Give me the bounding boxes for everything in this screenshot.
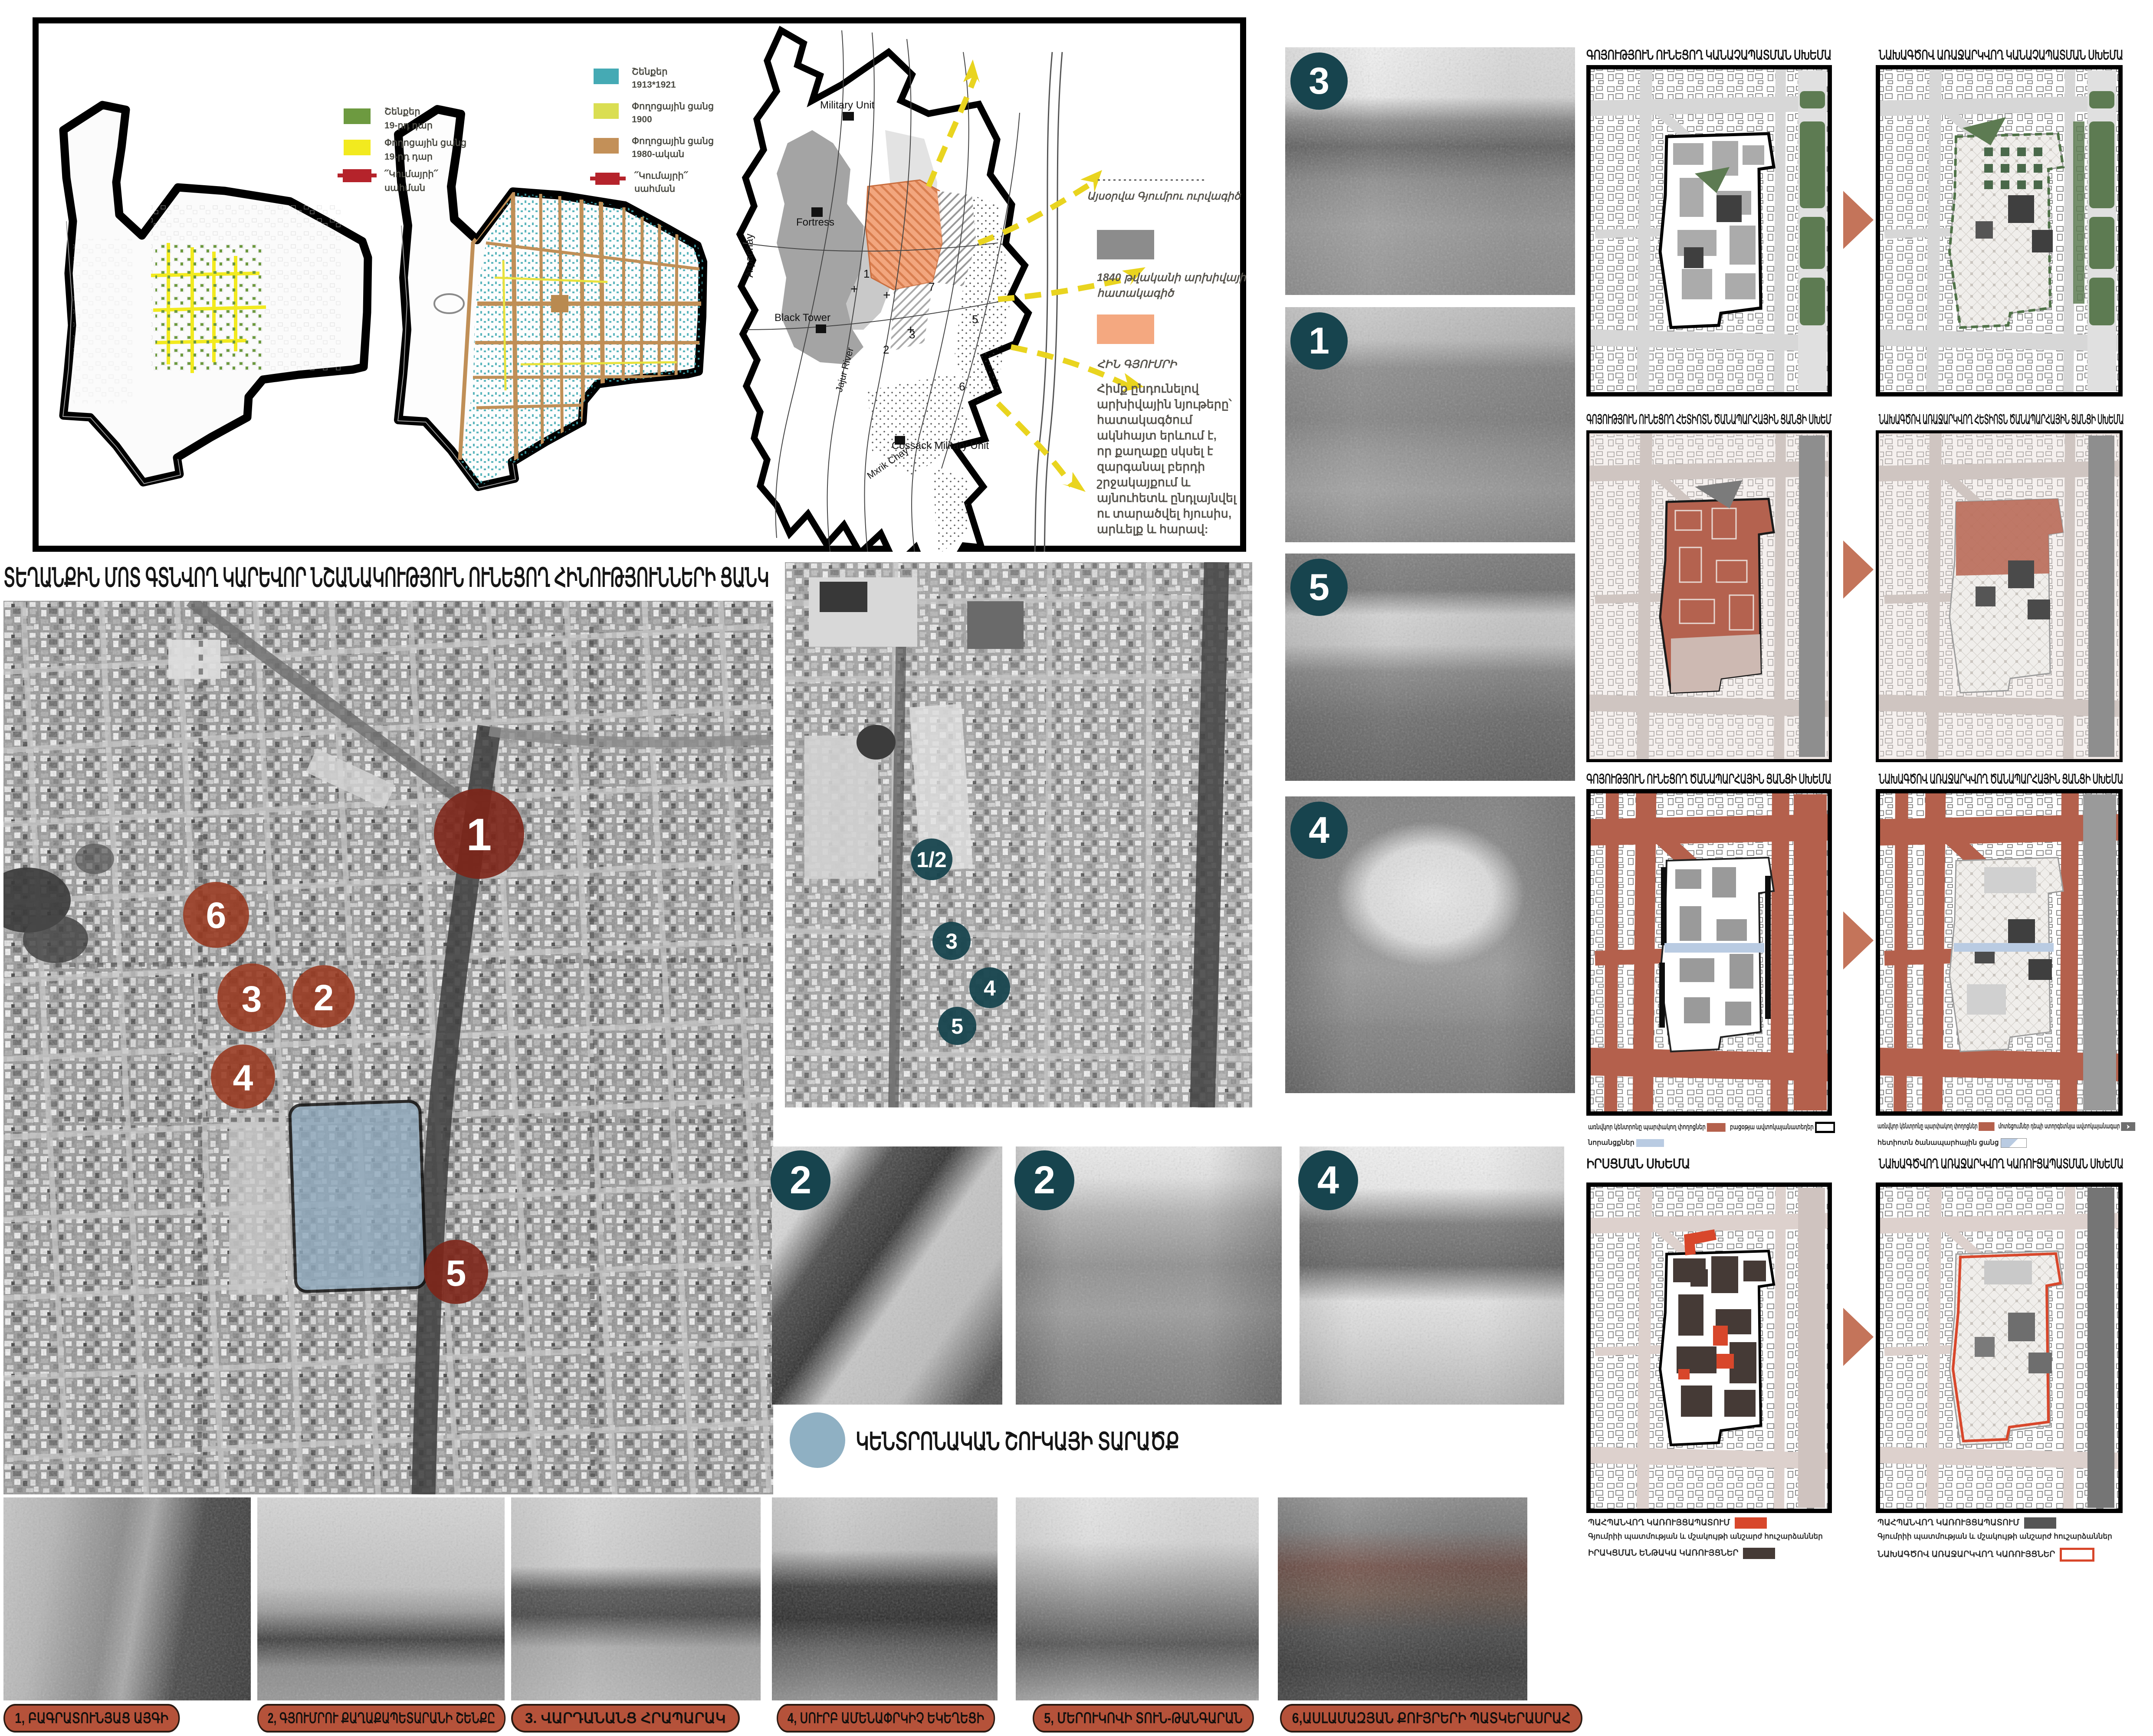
svg-text:հատակագծում: հատակագծում: [1097, 413, 1193, 427]
svg-text:՛՛Կումայրի՛՛: ՛՛Կումայրի՛՛: [384, 169, 439, 179]
svg-text:Փողոցային ցանց: Փողոցային ցանց: [632, 136, 714, 146]
svg-text:6: 6: [206, 895, 226, 936]
svg-text:+: +: [883, 288, 891, 302]
svg-text:ՀԻՆ ԳՅՈՒՄՐԻ: ՀԻՆ ԳՅՈՒՄՐԻ: [1097, 358, 1177, 370]
svg-text:5: 5: [951, 1014, 963, 1038]
svg-text:3: 3: [945, 929, 958, 953]
svg-text:սահման: սահման: [634, 184, 675, 194]
svg-text:1913*1921: 1913*1921: [632, 80, 676, 90]
svg-text:1/2: 1/2: [916, 848, 947, 872]
svg-text:այնուհետև ընդլայնվել: այնուհետև ընդլայնվել: [1097, 491, 1237, 505]
svg-text:1: 1: [863, 267, 870, 280]
svg-text:5: 5: [972, 313, 978, 326]
svg-text:19-րդ դար: 19-րդ դար: [384, 152, 433, 162]
svg-text:6: 6: [959, 380, 965, 393]
svg-text:որ քաղաքը սկսել է: որ քաղաքը սկսել է: [1097, 445, 1213, 458]
svg-text:արևելք և հարավ:: արևելք և հարավ:: [1097, 523, 1208, 536]
svg-text:2: 2: [314, 977, 334, 1018]
svg-text:ակնհայտ երևում է,: ակնհայտ երևում է,: [1097, 429, 1217, 442]
svg-text:զարգանալ բերդի: զարգանալ բերդի: [1097, 460, 1205, 474]
svg-text:2: 2: [883, 343, 889, 356]
svg-text:19-րդ դար: 19-րդ դար: [384, 121, 433, 131]
svg-text:սահման: սահման: [384, 183, 425, 193]
svg-text:Փողոցային ցանց: Փողոցային ցանց: [384, 138, 466, 148]
svg-text:հատակագիծ: հատակագիծ: [1097, 287, 1175, 299]
svg-text:1980-ական: 1980-ական: [632, 149, 684, 159]
svg-text:+: +: [907, 323, 915, 337]
svg-text:Arpachay: Arpachay: [744, 234, 755, 278]
svg-text:Հիմք ընդունելով: Հիմք ընդունելով: [1097, 382, 1199, 396]
svg-text:4: 4: [233, 1058, 253, 1098]
svg-text:+: +: [850, 282, 858, 296]
svg-text:4: 4: [984, 976, 996, 1000]
svg-text:Fortress: Fortress: [796, 216, 834, 228]
svg-text:Շենքեր: Շենքեր: [632, 67, 668, 77]
svg-text:1: 1: [466, 809, 492, 860]
svg-text:Փողոցային ցանց: Փողոցային ցանց: [632, 102, 714, 111]
svg-text:1840 թվականի արխիվային: 1840 թվականի արխիվային: [1097, 272, 1246, 284]
svg-text:շրջակայքում և: շրջակայքում և: [1096, 476, 1191, 489]
svg-text:՛՛Կումայրի՛՛: ՛՛Կումայրի՛՛: [634, 171, 689, 181]
svg-text:Շենքեր: Շենքեր: [384, 107, 420, 117]
svg-text:Military Unit: Military Unit: [820, 99, 875, 111]
svg-text:Այսօրվա Գյումրու ուրվագիծ: Այսօրվա Գյումրու ուրվագիծ: [1087, 190, 1242, 202]
svg-text:ու տարածվել հյուսիս,: ու տարածվել հյուսիս,: [1097, 507, 1231, 521]
svg-text:1900: 1900: [632, 115, 652, 124]
svg-text:7: 7: [929, 280, 935, 293]
svg-text:Black Tower: Black Tower: [775, 312, 830, 324]
svg-text:5: 5: [446, 1253, 466, 1294]
svg-text:արխիվային նյութերը՝: արխիվային նյութերը՝: [1097, 398, 1232, 411]
svg-text:3: 3: [242, 979, 262, 1019]
